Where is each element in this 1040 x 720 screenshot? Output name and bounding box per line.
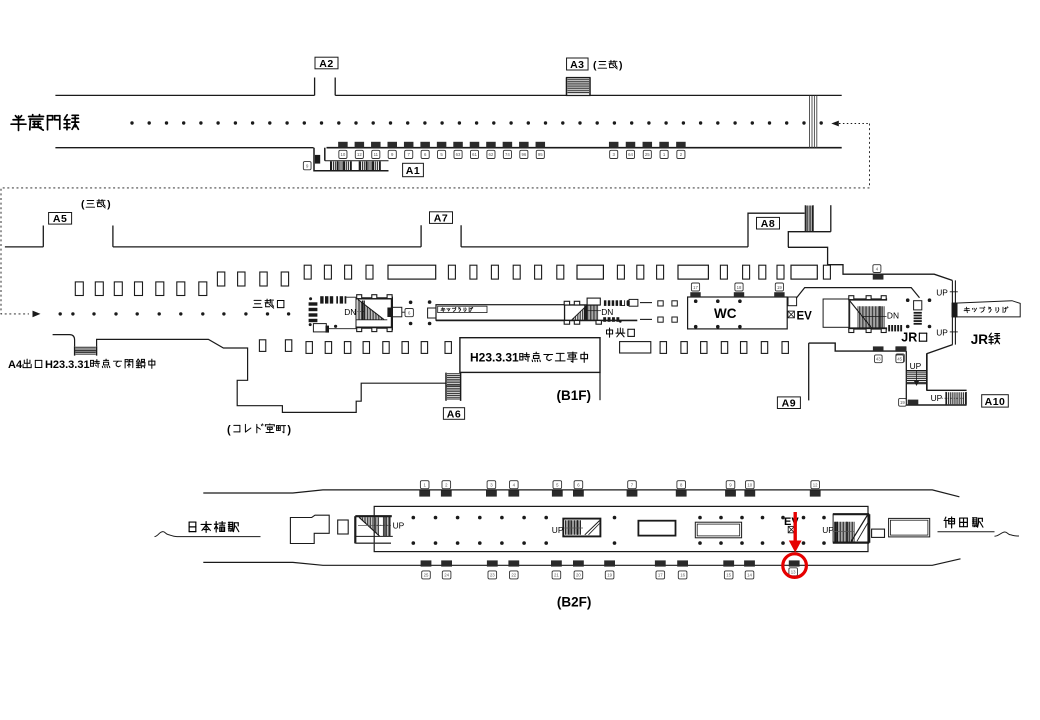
svg-text:43: 43 bbox=[876, 357, 881, 362]
svg-text:62: 62 bbox=[489, 152, 494, 157]
svg-text:DN: DN bbox=[344, 307, 356, 317]
svg-text:14: 14 bbox=[747, 573, 752, 578]
svg-text:95: 95 bbox=[538, 152, 543, 157]
svg-text:17: 17 bbox=[658, 573, 663, 578]
svg-text:EV: EV bbox=[797, 311, 813, 323]
svg-text:25: 25 bbox=[424, 573, 429, 578]
svg-text:UP: UP bbox=[910, 361, 922, 371]
svg-text:(B1F): (B1F) bbox=[557, 388, 592, 403]
svg-text:A6: A6 bbox=[447, 408, 461, 420]
svg-text:JR: JR bbox=[901, 331, 917, 345]
svg-text:UP: UP bbox=[822, 525, 834, 535]
svg-text:A3: A3 bbox=[570, 59, 584, 71]
svg-text:): ) bbox=[619, 60, 623, 72]
svg-text:23: 23 bbox=[490, 573, 495, 578]
svg-text:18: 18 bbox=[737, 285, 742, 290]
svg-text:25: 25 bbox=[645, 152, 650, 157]
svg-text:A2: A2 bbox=[319, 58, 333, 70]
svg-text:A1: A1 bbox=[406, 165, 420, 177]
svg-text:A9: A9 bbox=[782, 398, 796, 410]
svg-text:17: 17 bbox=[693, 285, 698, 290]
svg-text:UP: UP bbox=[931, 393, 943, 403]
svg-text:UP: UP bbox=[936, 328, 948, 338]
svg-text:15: 15 bbox=[726, 573, 731, 578]
svg-text:A7: A7 bbox=[434, 213, 448, 225]
svg-text:20: 20 bbox=[576, 573, 581, 578]
svg-text:13: 13 bbox=[791, 570, 796, 575]
svg-text:(B2F): (B2F) bbox=[557, 594, 592, 609]
svg-text:19: 19 bbox=[777, 285, 782, 290]
svg-text:45: 45 bbox=[897, 357, 902, 362]
svg-text:10: 10 bbox=[747, 483, 752, 488]
svg-text:61: 61 bbox=[472, 152, 477, 157]
svg-text:WC: WC bbox=[714, 306, 737, 321]
svg-text:11: 11 bbox=[374, 152, 379, 157]
svg-text:H23.3.31: H23.3.31 bbox=[470, 351, 519, 365]
svg-text:64: 64 bbox=[628, 152, 633, 157]
svg-text:10: 10 bbox=[341, 152, 346, 157]
svg-text:A4: A4 bbox=[8, 359, 23, 371]
svg-text:A8: A8 bbox=[761, 218, 775, 230]
svg-text:21: 21 bbox=[554, 573, 559, 578]
svg-text:63: 63 bbox=[456, 152, 461, 157]
svg-text:UP: UP bbox=[552, 525, 564, 535]
svg-text:DN: DN bbox=[887, 311, 899, 321]
svg-text:19: 19 bbox=[900, 400, 905, 405]
svg-text:UP: UP bbox=[936, 287, 948, 297]
svg-text:A5: A5 bbox=[53, 213, 67, 225]
svg-text:(: ( bbox=[81, 199, 85, 211]
svg-text:22: 22 bbox=[511, 573, 516, 578]
svg-text:): ) bbox=[287, 424, 291, 436]
svg-text:(: ( bbox=[227, 424, 231, 436]
svg-text:74: 74 bbox=[505, 152, 510, 157]
svg-text:JR: JR bbox=[971, 332, 989, 347]
svg-text:UP: UP bbox=[393, 521, 405, 531]
svg-text:H23.3.31: H23.3.31 bbox=[45, 359, 90, 371]
svg-text:A10: A10 bbox=[985, 396, 1006, 408]
svg-text:DN: DN bbox=[601, 307, 613, 317]
svg-text:): ) bbox=[107, 199, 111, 211]
svg-text:(: ( bbox=[593, 60, 597, 72]
svg-text:19: 19 bbox=[607, 573, 612, 578]
svg-text:16: 16 bbox=[680, 573, 685, 578]
svg-text:12: 12 bbox=[357, 152, 362, 157]
svg-text:96: 96 bbox=[521, 152, 526, 157]
svg-text:24: 24 bbox=[444, 573, 449, 578]
svg-text:12: 12 bbox=[813, 483, 818, 488]
